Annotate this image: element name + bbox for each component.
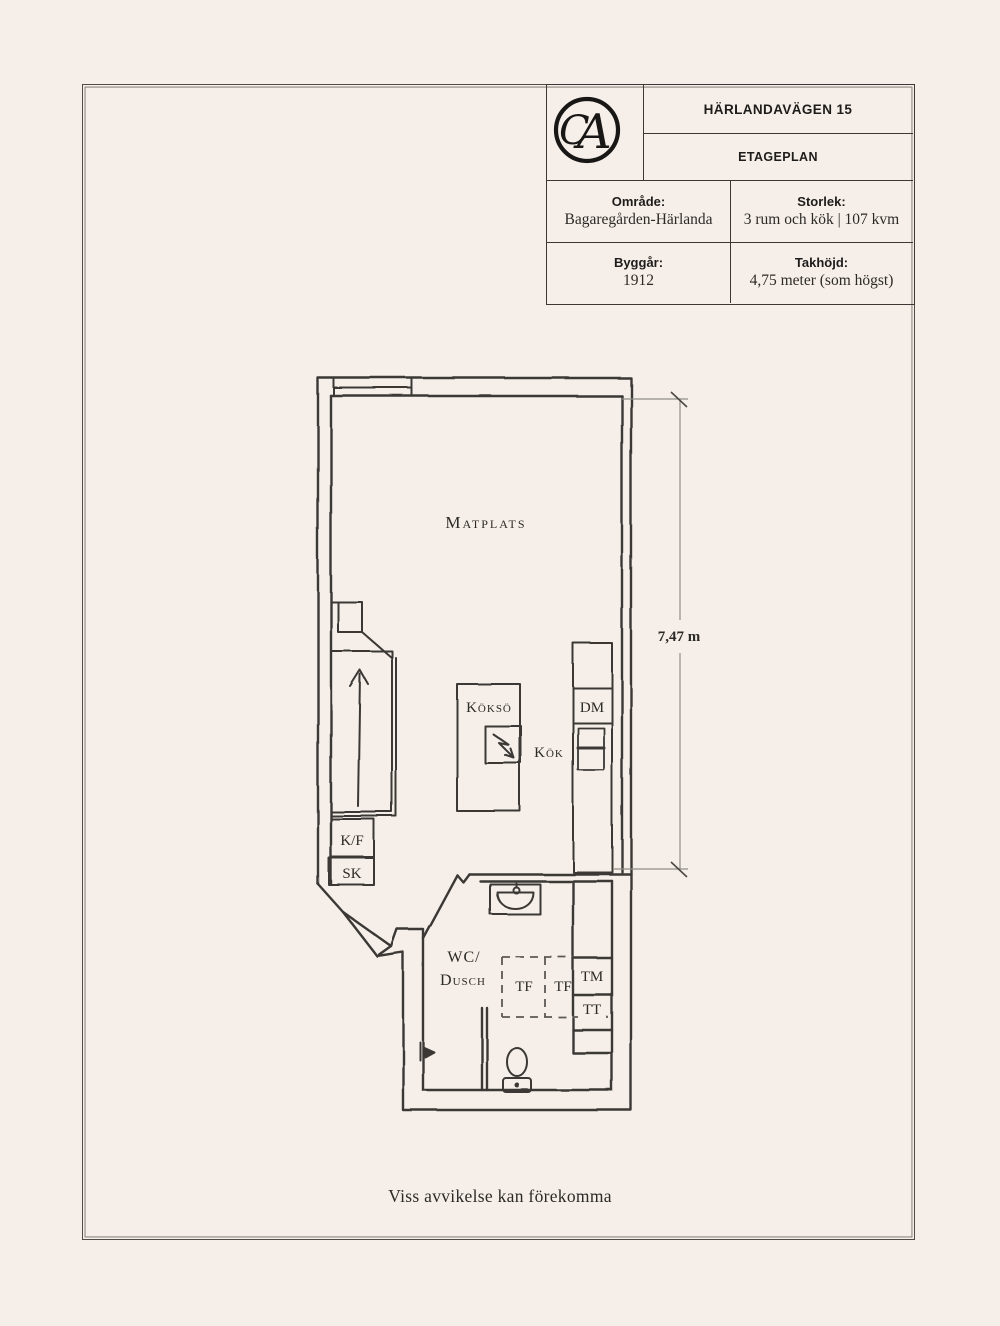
room-label-kok: Kök <box>534 745 564 761</box>
footer-note: Viss avvikelse kan förekomma <box>0 1186 1000 1207</box>
label-tf-1: TF <box>515 979 533 995</box>
label-dm: DM <box>580 700 604 716</box>
room-label-matplats: Matplats <box>445 513 526 532</box>
chimney <box>338 602 362 632</box>
dimension-label: 7,47 m <box>658 629 701 645</box>
stove-lightning-icon <box>493 734 514 758</box>
kitchen-sink <box>578 728 604 748</box>
toilet <box>507 1048 527 1076</box>
wc-doorway <box>423 875 457 938</box>
label-tf-2: TF <box>554 979 572 995</box>
label-tt: TT <box>583 1002 601 1018</box>
floorplan-page: C A HÄRLANDAVÄGEN 15 ETAGEPLAN Område: B… <box>0 0 1000 1326</box>
label-sk: SK <box>342 866 361 882</box>
room-label-dusch: Dusch <box>440 972 486 989</box>
stairs <box>331 651 392 812</box>
walls <box>318 378 631 1110</box>
stairs-up-arrow <box>350 670 368 806</box>
room-label-wc: WC/ <box>447 949 480 966</box>
label-tm: TM <box>581 969 604 985</box>
room-label-koksoe: Köksö <box>466 700 512 716</box>
floorplan-drawing: Matplats Köksö Kök WC/ Dusch K/F SK DM T… <box>0 0 1000 1326</box>
entry-door-leaf <box>343 912 391 956</box>
label-kf: K/F <box>340 833 363 849</box>
